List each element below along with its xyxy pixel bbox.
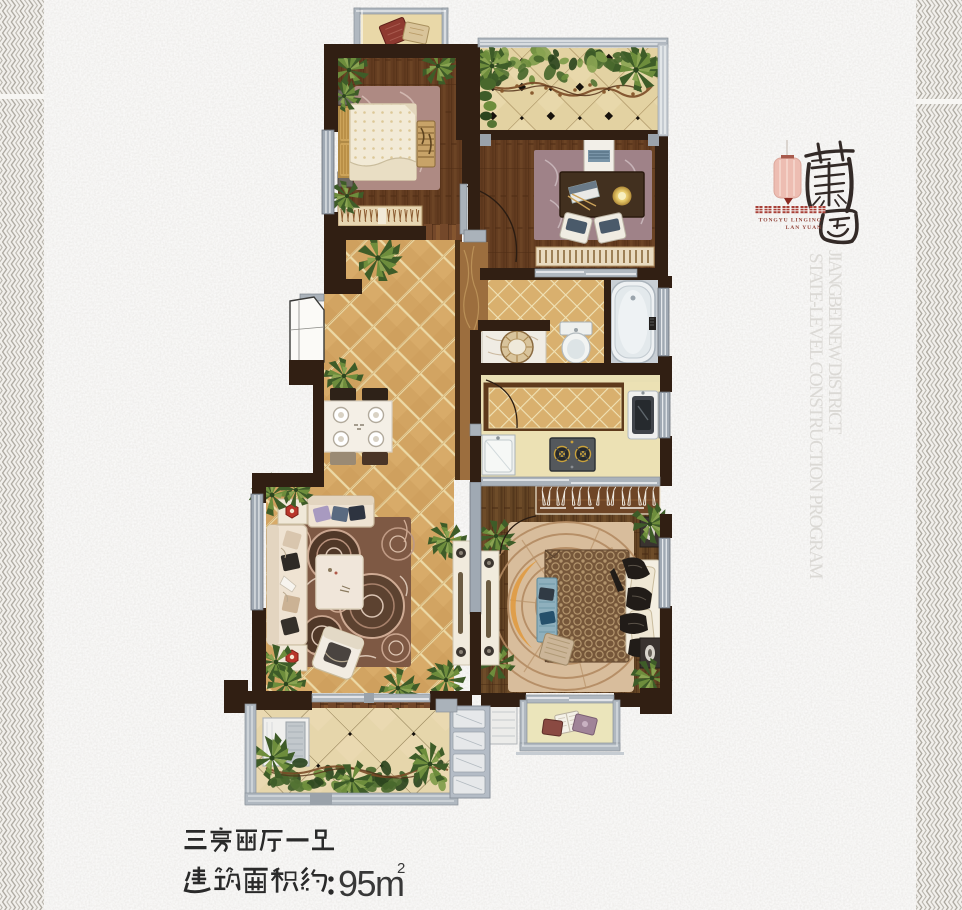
svg-text:95m: 95m [338,863,404,904]
svg-text:TONGYU LINGING: TONGYU LINGING [759,218,822,224]
svg-text:LAN YUAN: LAN YUAN [786,225,822,231]
svg-text:JIANGBEI NEW DISTRICT: JIANGBEI NEW DISTRICT [824,250,845,435]
svg-text:STATE-LEVEL CONSTRUCTION PROGR: STATE-LEVEL CONSTRUCTION PROGRAM [805,253,826,580]
svg-text:2: 2 [397,860,405,877]
